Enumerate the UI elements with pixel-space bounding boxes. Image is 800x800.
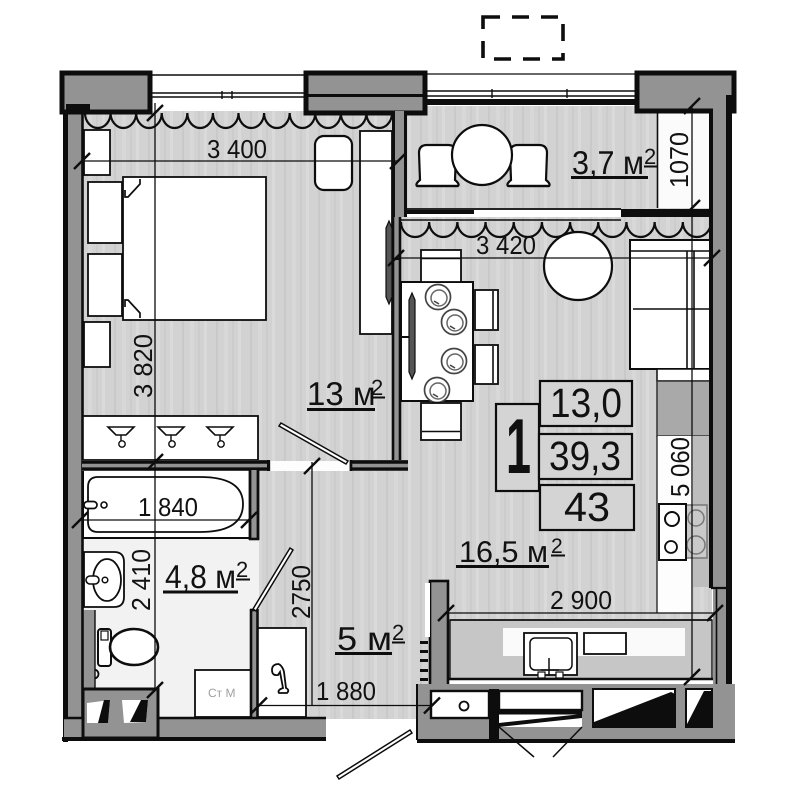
svg-text:5 060: 5 060 [665,437,695,497]
svg-text:2: 2 [236,557,248,582]
svg-text:2: 2 [644,144,656,169]
svg-text:1 880: 1 880 [316,676,376,706]
svg-text:43: 43 [564,484,610,530]
svg-text:13,0: 13,0 [550,380,622,426]
svg-text:3 820: 3 820 [128,334,158,398]
svg-text:Ст М: Ст М [208,686,236,700]
svg-text:2 900: 2 900 [550,585,612,615]
svg-text:13 м: 13 м [307,375,376,412]
svg-text:5 м: 5 м [337,620,392,657]
svg-text:16,5 м: 16,5 м [459,536,548,569]
svg-text:1070: 1070 [664,132,694,188]
svg-text:2: 2 [392,620,404,645]
svg-text:2750: 2750 [286,565,316,619]
svg-text:3 400: 3 400 [207,134,267,164]
svg-text:1 840: 1 840 [138,492,198,522]
svg-text:2: 2 [371,375,383,400]
svg-text:2 410: 2 410 [126,549,156,611]
svg-text:1: 1 [506,402,531,490]
svg-text:4,8 м: 4,8 м [165,558,236,595]
svg-text:39,3: 39,3 [549,433,621,479]
svg-text:3 420: 3 420 [476,230,536,260]
svg-text:3,7 м: 3,7 м [572,144,644,181]
